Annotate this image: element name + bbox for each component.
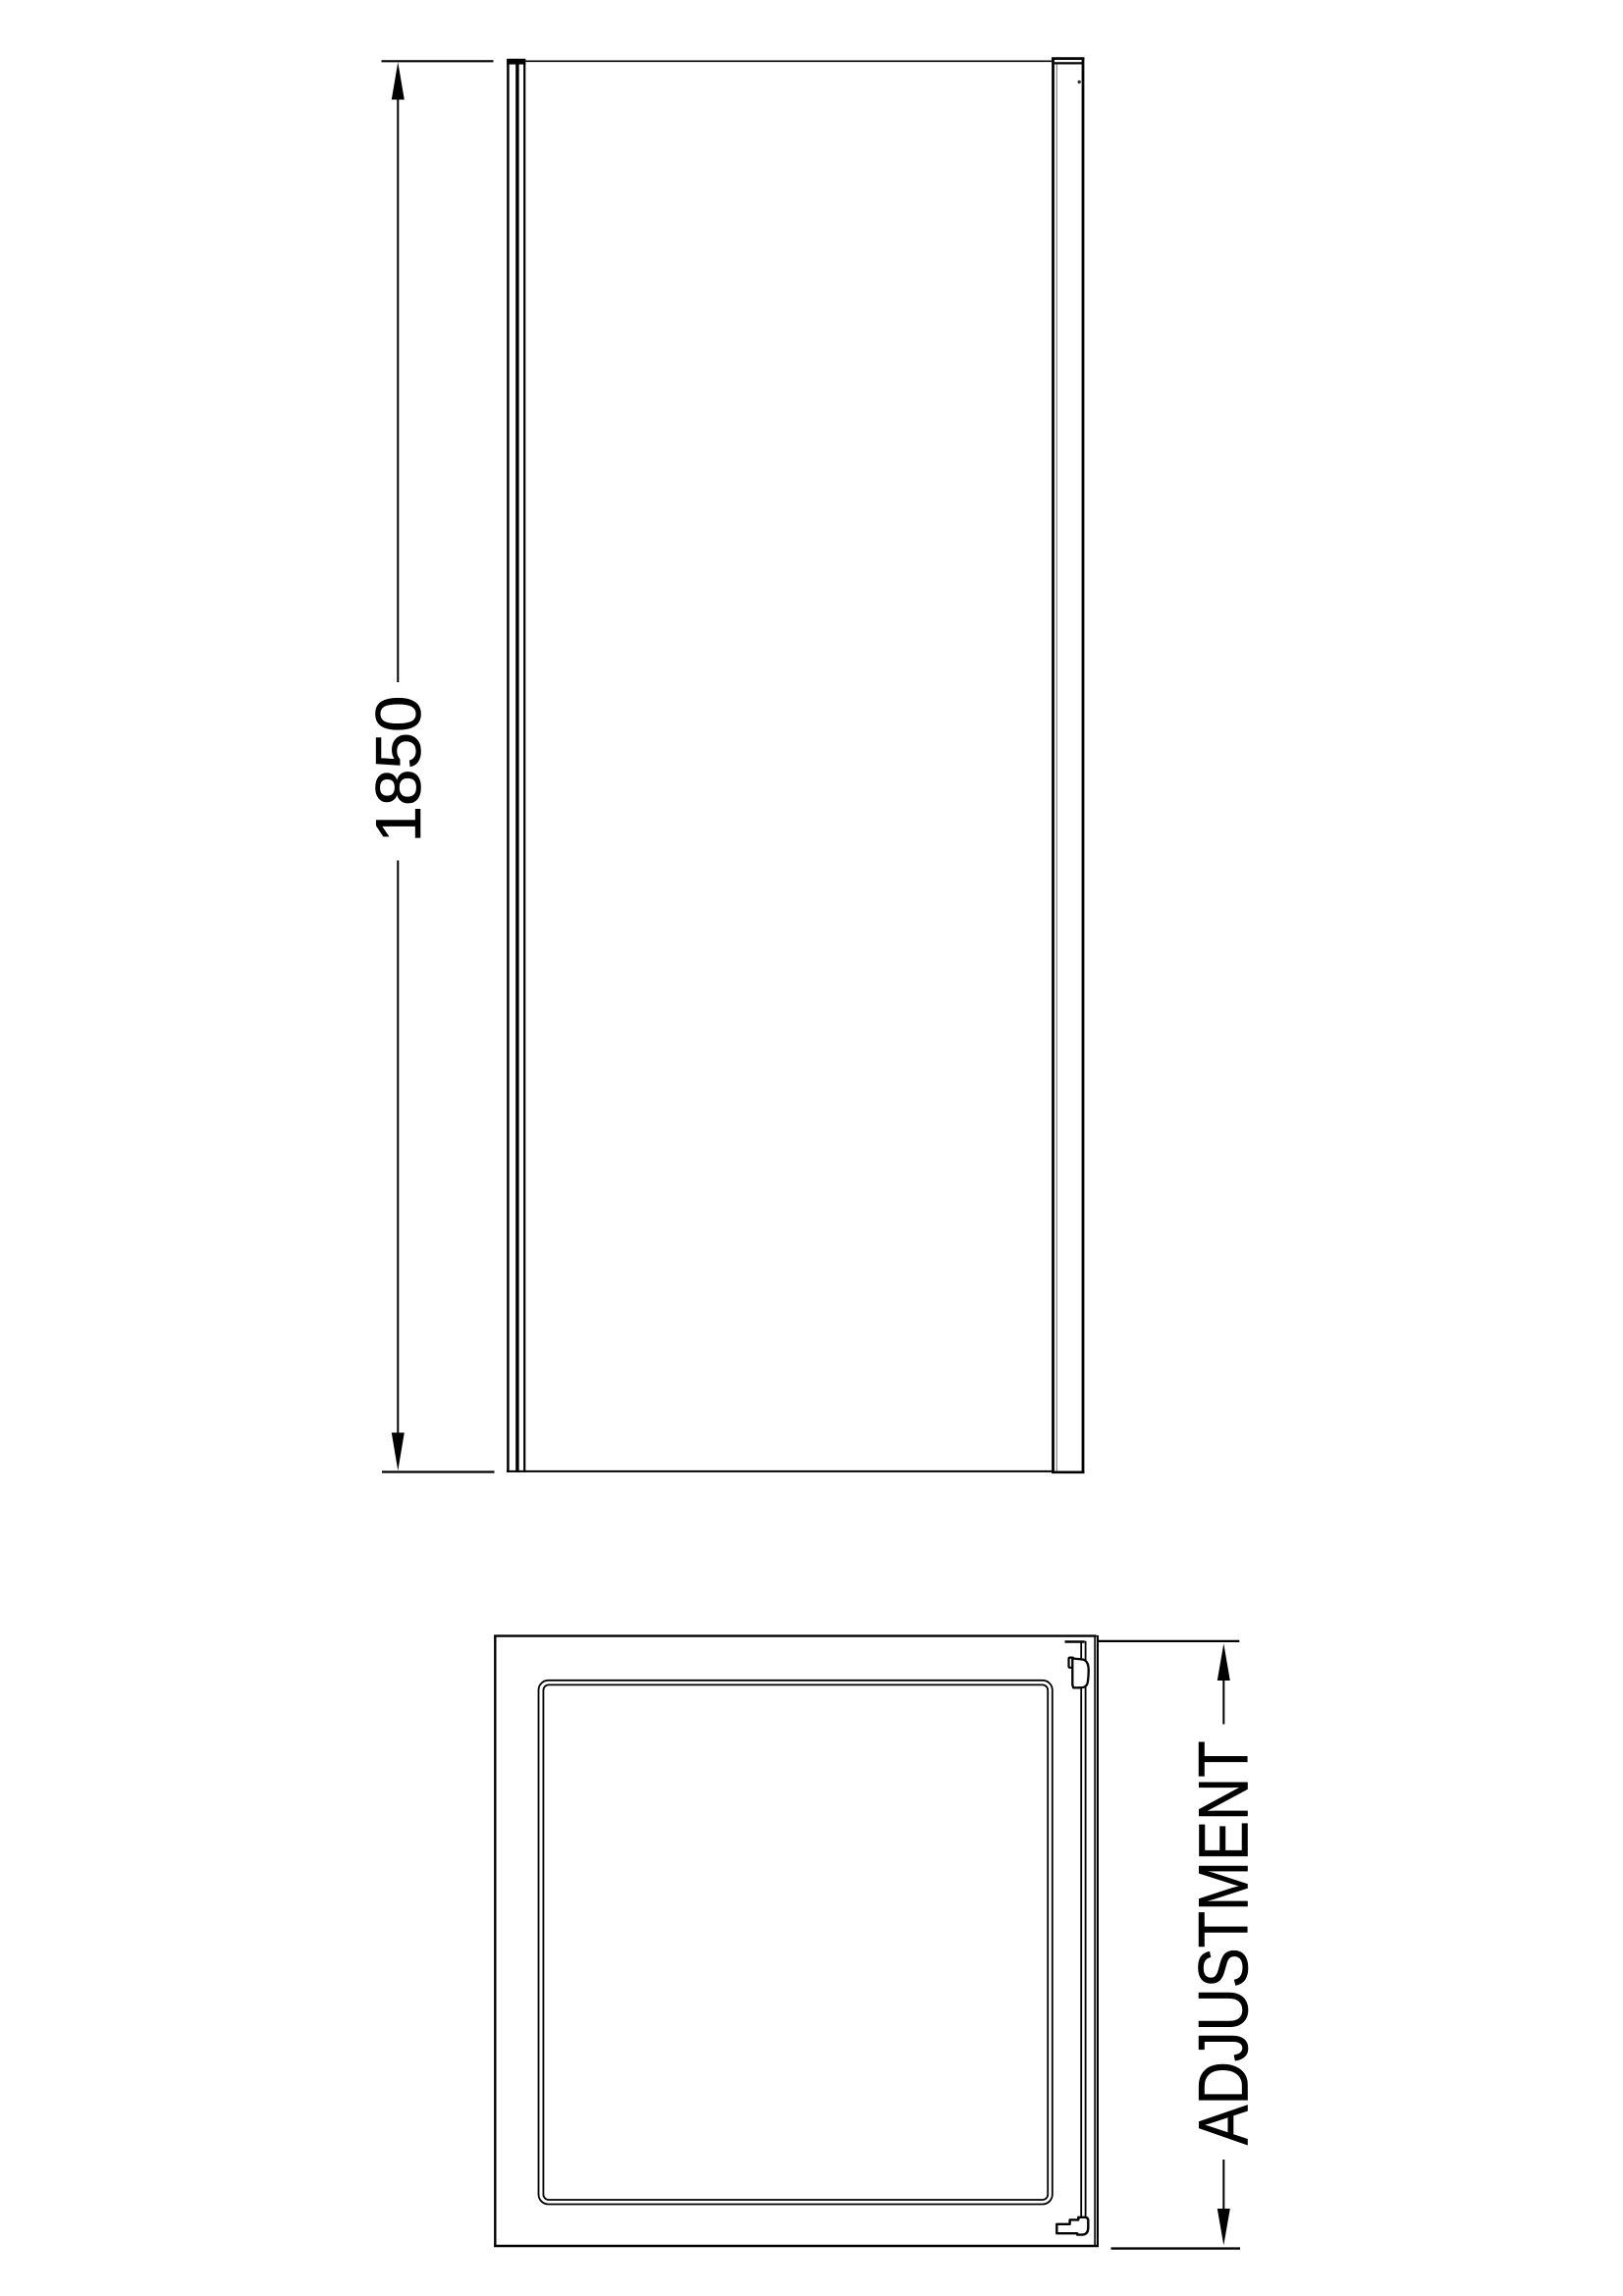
svg-text:1850: 1850: [363, 696, 434, 843]
svg-text:ADJUSTMENT: ADJUSTMENT: [1186, 1740, 1264, 2145]
